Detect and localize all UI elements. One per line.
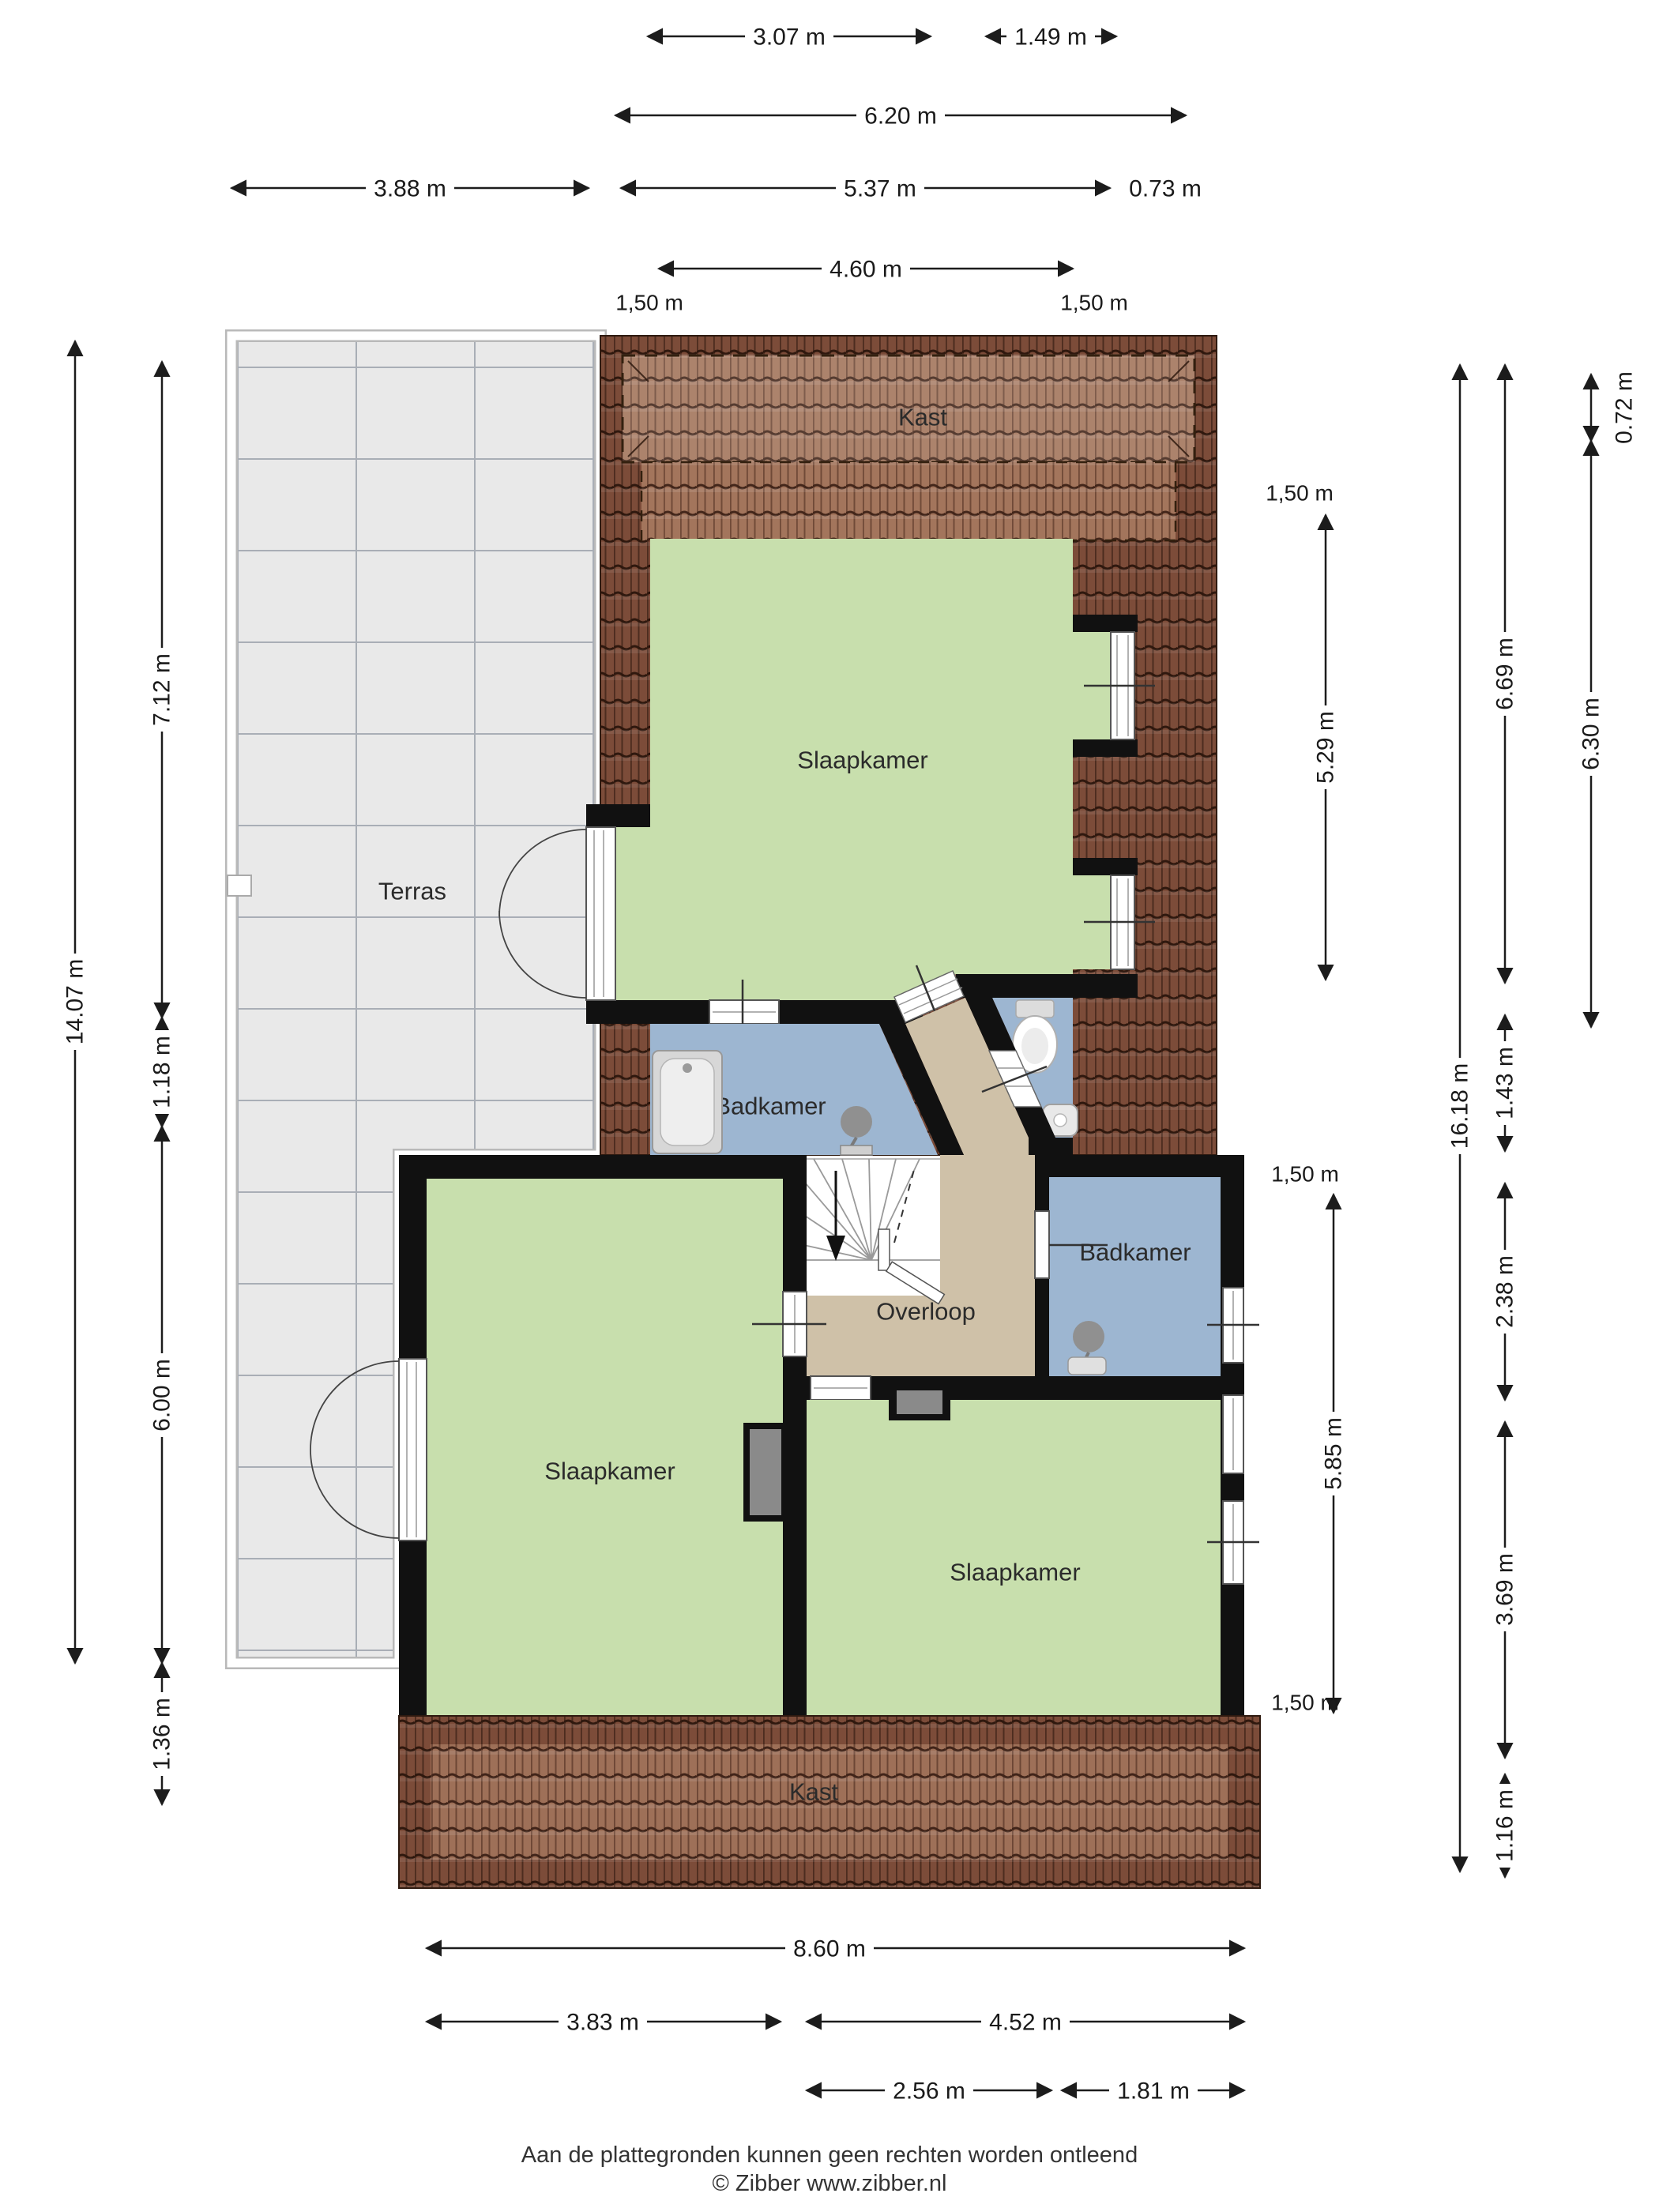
bathroom-right: Badkamer [1035, 1155, 1244, 1376]
toilet-tank-icon [1016, 1000, 1054, 1018]
dim-2-56: 2.56 m [893, 2078, 965, 2105]
dim-5-29: 5.29 m [1313, 711, 1339, 784]
floorplan-page: Terras Kast Slaapkamer [0, 0, 1659, 2212]
dim-1-49: 1.49 m [1014, 24, 1087, 51]
footer-copyright: © Zibber www.zibber.nl [713, 2171, 947, 2196]
dim-3-83: 3.83 m [566, 2010, 639, 2036]
floorplan-svg: Terras Kast Slaapkamer [0, 0, 1659, 2212]
dim-1-81: 1.81 m [1117, 2078, 1190, 2105]
dim-14-07: 14.07 m [62, 959, 88, 1044]
dim-3-88b: 3.88 m [374, 176, 446, 202]
dim-6-00: 6.00 m [149, 1359, 175, 1431]
dimensions-bottom: 8.60 m 3.83 m 4.52 m 2.56 m 1.81 m [427, 1934, 1244, 2105]
dim-0-72: 0.72 m [1612, 371, 1638, 444]
toilet-sink-basin [1054, 1114, 1066, 1127]
dim-0-73: 0.73 m [1129, 176, 1202, 202]
bedroom-right-label: Slaapkamer [950, 1559, 1080, 1586]
bathroom-right-north-wall [1035, 1155, 1244, 1177]
dimensions-inner-right: 1,50 m 5.29 m 1,50 m 5.85 m 1,50 m [1266, 481, 1348, 1715]
dim-1-16: 1.16 m [1492, 1789, 1518, 1862]
dim-6-30: 6.30 m [1578, 698, 1604, 770]
dim-16-18: 16.18 m [1447, 1063, 1473, 1149]
toilet-south-wall [1029, 1138, 1073, 1155]
dim-1-36: 1.36 m [149, 1698, 175, 1770]
closet-top-label: Kast [898, 404, 947, 431]
stair-newel [878, 1229, 890, 1270]
dormer2-cap-top [1073, 858, 1138, 875]
bedroom-top-south-wall-east [956, 974, 1138, 998]
terrace-label: Terras [378, 878, 446, 905]
bathroom-right-label: Badkamer [1079, 1239, 1191, 1266]
dim-3-69: 3.69 m [1492, 1553, 1518, 1626]
bedroom-right-lower: Slaapkamer [807, 1400, 1221, 1716]
dimensions-right: 16.18 m 6.69 m 1.43 m 2.38 m 3.69 m 1.16… [1446, 365, 1638, 1877]
bedroom-top-label: Slaapkamer [797, 747, 927, 774]
toilet-seat-icon [1021, 1028, 1048, 1064]
bathroom-right-floor [1049, 1177, 1221, 1376]
inner-knee-top: 1,50 m [1266, 481, 1334, 506]
lower-roof: Kast [399, 1716, 1260, 1888]
dim-6-20: 6.20 m [864, 103, 937, 130]
roof-kast-band2 [641, 462, 1176, 540]
dormer1-cap-top [1073, 615, 1138, 632]
footer: Aan de plattegronden kunnen geen rechten… [521, 2142, 1138, 2196]
chimney-left [750, 1429, 781, 1515]
dim-7-12: 7.12 m [149, 653, 175, 726]
closet-bottom-label: Kast [789, 1778, 838, 1806]
landing-label: Overloop [876, 1298, 976, 1326]
bedroom-left-label: Slaapkamer [544, 1458, 675, 1485]
dim-4-60: 4.60 m [829, 257, 902, 283]
dim-2-38: 2.38 m [1492, 1255, 1518, 1328]
bathtub-drain-icon [683, 1063, 692, 1073]
bedroom-left-terrace-door [399, 1359, 427, 1540]
bedroom-left-north-wall [399, 1155, 807, 1179]
terrace-railing-joint [228, 875, 251, 896]
shower-head-right-icon [1073, 1321, 1104, 1352]
dim-4-52: 4.52 m [989, 2010, 1062, 2036]
footer-disclaimer: Aan de plattegronden kunnen geen rechten… [521, 2142, 1138, 2168]
dim-5-85: 5.85 m [1321, 1417, 1347, 1490]
bathroom-right-door [1035, 1211, 1049, 1278]
bedroom-left-floor [427, 1179, 783, 1716]
sink-right-icon [1068, 1357, 1106, 1375]
inner-knee-bottom: 1,50 m [1271, 1691, 1339, 1715]
chimney-right [897, 1390, 942, 1414]
dimensions-top: 3.07 m 1.49 m 6.20 m 14.07 m 3.88 m 5.37… [231, 22, 1202, 315]
knee-height-right: 1,50 m [1060, 291, 1128, 315]
dim-1-18: 1.18 m [149, 1036, 175, 1108]
sink-left-icon [841, 1145, 872, 1155]
terrace-door-frame [586, 827, 615, 1000]
terrace-door-cap-top [586, 804, 650, 827]
knee-height-left: 1,50 m [615, 291, 683, 315]
bathroom-left-label: Badkamer [714, 1093, 826, 1120]
dormer1-cap-bottom [1073, 739, 1138, 757]
landing-south-wall [807, 1376, 1244, 1400]
shower-head-left-icon [841, 1106, 872, 1138]
dim-1-43: 1.43 m [1492, 1047, 1518, 1119]
dim-8-60: 8.60 m [793, 1936, 866, 1962]
dim-5-37: 5.37 m [844, 176, 916, 202]
dimensions-left: 14.07 m 7.12 m 1.18 m 6.00 m 1.36 m [61, 341, 176, 1804]
inner-knee-mid: 1,50 m [1271, 1162, 1339, 1187]
dim-6-69: 6.69 m [1492, 638, 1518, 710]
dim-3-07: 3.07 m [753, 24, 826, 51]
